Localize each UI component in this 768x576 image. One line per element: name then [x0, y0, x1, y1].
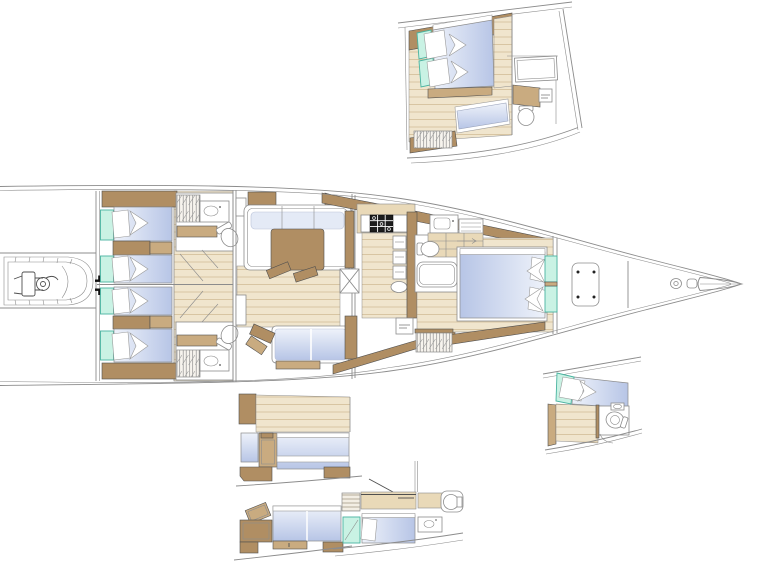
inset-cabin-variant-lower	[234, 502, 352, 560]
upper-double-berth	[277, 433, 349, 469]
sink-starboard	[200, 350, 229, 371]
berth-port-inboard	[101, 255, 173, 283]
saloon-floor	[237, 266, 340, 327]
owner-sink	[430, 215, 458, 233]
stove	[370, 215, 393, 232]
shelf-port	[150, 242, 172, 254]
crew-counter	[361, 492, 443, 509]
galley	[357, 204, 417, 318]
owner-shower	[417, 262, 457, 287]
berth-starboard-outboard	[101, 329, 173, 362]
lower-cabinet-right	[323, 542, 343, 552]
upper-berth-platform	[256, 395, 350, 432]
owner-hanging-locker	[415, 329, 453, 352]
variant-hanging-locker	[414, 131, 452, 148]
inset-owner-cabin-variant	[398, 2, 582, 163]
owner-bed	[457, 247, 557, 321]
main-plan	[0, 185, 742, 385]
galley-stool	[391, 282, 407, 293]
hanging-locker-starboard	[177, 350, 200, 377]
crew-shower-tray	[343, 517, 360, 543]
cabinet-saloon-top	[248, 192, 276, 205]
mast-box	[340, 269, 359, 293]
saloon-table	[271, 229, 324, 270]
owner-head-shelves	[459, 219, 483, 235]
detail-sink	[611, 403, 624, 410]
wardrobe-aft-starboard	[102, 363, 177, 379]
layout-svg	[0, 0, 768, 576]
crew-sink	[418, 517, 442, 532]
upper-side-panel	[241, 433, 258, 462]
inset-cabin-variant-upper	[236, 394, 362, 486]
yacht-layout-drawing	[0, 0, 768, 576]
crew-toilet	[441, 491, 463, 512]
upper-bottom-cabinet-right	[324, 467, 350, 478]
variant-vanity	[513, 85, 540, 107]
vanity-wall-starboard	[177, 335, 217, 346]
upper-bottom-cabinet-left	[240, 467, 272, 481]
nightstand-starboard	[113, 316, 150, 329]
vanity-wall-port	[177, 226, 217, 237]
saloon	[236, 192, 359, 369]
lower-double-berth	[273, 506, 341, 541]
variant-shower	[514, 56, 557, 82]
lower-cabinet	[240, 520, 272, 542]
detail-floor	[556, 404, 598, 443]
upper-wardrobe	[239, 394, 256, 424]
inset-forward-cabin-detail	[543, 357, 642, 454]
sink-port	[200, 201, 229, 222]
berth-starboard-inboard	[101, 287, 173, 315]
berth-port-outboard	[101, 207, 173, 241]
owner-label-box	[396, 318, 413, 334]
variant-bathroom	[507, 14, 558, 135]
shelf-starboard	[150, 316, 172, 328]
lower-cabinet-left	[240, 542, 258, 553]
locker-port-fwd	[236, 295, 246, 325]
lower-bench	[273, 541, 307, 549]
crew-louvered-locker	[342, 493, 360, 511]
sideboard-aft-bulkhead	[345, 211, 354, 268]
nightstand-port	[113, 241, 150, 255]
detail-left-wedge	[548, 404, 556, 446]
starboard-settee	[272, 326, 349, 369]
variant-label-box	[539, 89, 552, 102]
upper-cabinet	[259, 433, 277, 467]
crew-hatch-strut	[369, 479, 393, 492]
fridge-drawers	[393, 236, 406, 279]
deck-hatch	[572, 263, 599, 306]
variant-toilet	[518, 106, 534, 126]
crew-berth	[361, 514, 415, 544]
inset-crew-cabin-variant	[333, 461, 463, 556]
hanging-locker-port	[177, 195, 200, 222]
sideboard-fwd-bulkhead	[345, 316, 357, 359]
owner-toilet	[417, 242, 439, 257]
wardrobe-aft-port	[102, 191, 177, 207]
variant-bedside-planks	[494, 16, 512, 88]
variant-bed	[417, 15, 494, 89]
